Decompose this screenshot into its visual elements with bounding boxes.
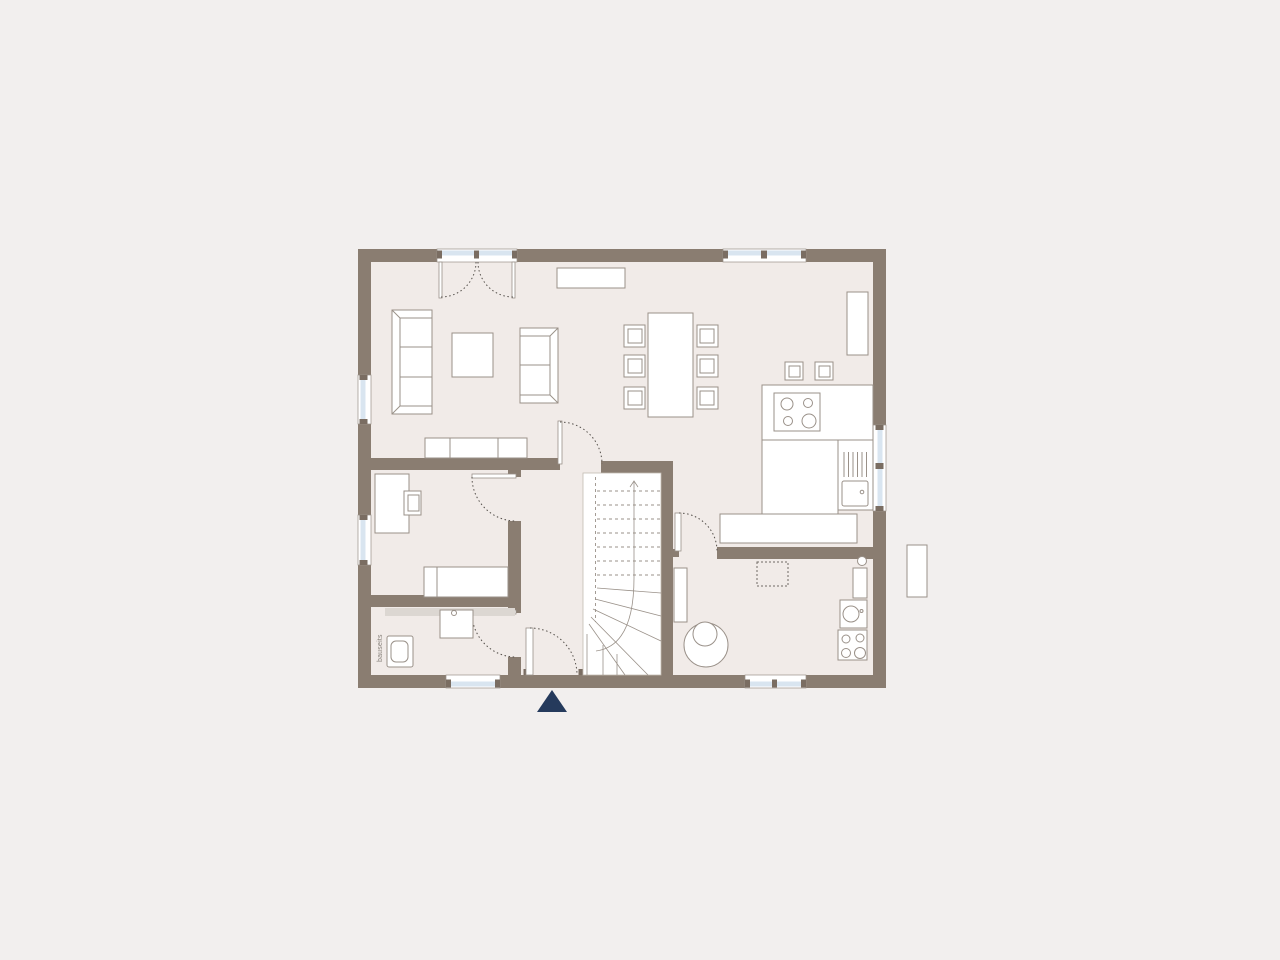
- sofa-2-seat: [520, 328, 558, 403]
- entrance-marker-triangle: [537, 690, 567, 712]
- toilet: [387, 636, 413, 667]
- kitchen-module: [815, 362, 833, 380]
- window-bottom-utility: [745, 675, 806, 688]
- dining-chair: [697, 387, 718, 409]
- dining-chair: [624, 355, 645, 377]
- washbasin: [440, 610, 473, 638]
- coffee-table: [452, 333, 493, 377]
- drain: [858, 557, 867, 566]
- dining-table: [648, 313, 693, 417]
- dining-chair: [697, 325, 718, 347]
- floor-plan-canvas: bauseits: [0, 0, 1280, 960]
- window-left-office: [358, 515, 371, 565]
- outdoor-element: [907, 545, 927, 597]
- lowboard: [425, 438, 527, 458]
- dining-furniture: [624, 313, 718, 417]
- bauseits-label: bauseits: [377, 634, 384, 662]
- cooktop: [774, 393, 820, 431]
- kitchen-module: [785, 362, 803, 380]
- sofa-3-seat: [392, 310, 432, 414]
- bed: [424, 567, 508, 597]
- tall-cabinet: [847, 292, 868, 355]
- sink: [842, 481, 868, 506]
- water-heater: [853, 568, 867, 598]
- floor-plan-drawing: bauseits: [0, 0, 1280, 960]
- dining-chair: [624, 387, 645, 409]
- wall-shelf: [557, 268, 625, 288]
- kitchen-island: [762, 440, 838, 517]
- window-bottom-bath: [446, 675, 500, 688]
- dining-chair: [624, 325, 645, 347]
- faucet: [860, 490, 864, 494]
- sink-counter: [838, 440, 873, 510]
- boiler-tank: [684, 622, 728, 667]
- washing-machine: [840, 600, 867, 628]
- french-door-glazing: [437, 249, 517, 262]
- staircase: [583, 473, 661, 675]
- dining-chair: [697, 355, 718, 377]
- window-top-right: [723, 249, 806, 262]
- window-right-kitchen: [873, 425, 886, 511]
- desk-chair: [404, 491, 421, 515]
- kitchen-bench: [720, 514, 857, 543]
- radiator: [674, 568, 687, 622]
- laundry-unit: [838, 630, 867, 660]
- window-left-living: [358, 375, 371, 424]
